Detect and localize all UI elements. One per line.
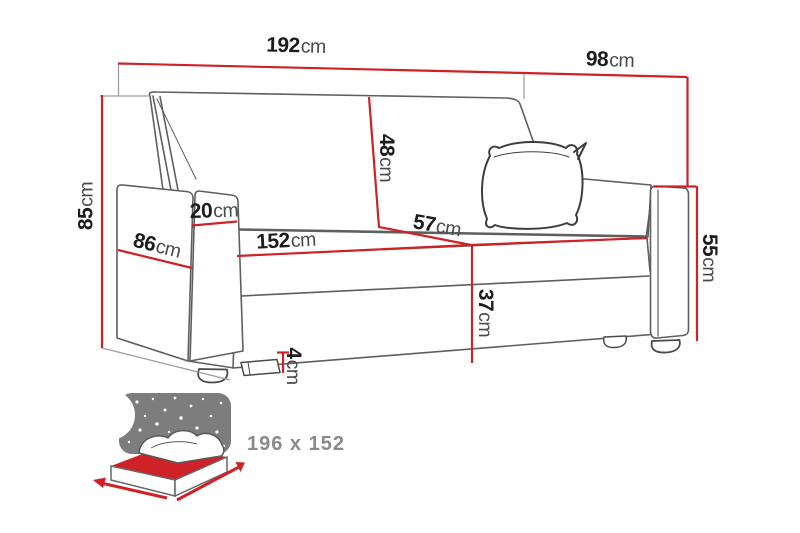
dim-unit: cm (434, 215, 462, 241)
dim-unit: cm (75, 182, 97, 207)
front-right-foot (652, 340, 680, 353)
arrow-head-left (93, 478, 106, 489)
dim-unit: cm (290, 229, 316, 252)
dim-value: 55 (698, 234, 721, 256)
mid-leg (241, 360, 280, 376)
dim-label-seat-height: 37cm (474, 289, 496, 337)
dim-value: 85 (74, 208, 97, 230)
dim-value: 192 (266, 33, 300, 57)
dim-label-overall-depth: 98cm (585, 48, 634, 71)
dim-value: 37 (474, 289, 497, 311)
dim-value: 57 (411, 210, 437, 237)
dim-label-overall-height: 85cm (75, 182, 97, 230)
dim-value: 98 (585, 47, 608, 71)
dim-value: 4 (282, 347, 305, 358)
dim-unit: cm (300, 35, 326, 58)
dim-unit: cm (609, 49, 635, 72)
dim-unit: cm (375, 157, 397, 182)
dim-label-overall-width: 192cm (266, 34, 326, 57)
dim-label-leg-height: 4cm (282, 347, 304, 384)
dim-label-armrest-height: 55cm (698, 234, 720, 282)
sofa-dimensions-diagram: 192cm 98cm 85cm 20cm 86cm 152cm 48cm 57c… (0, 0, 800, 533)
sleeping-area-size-label: 196 x 152 (247, 434, 345, 454)
dim-value: 48 (375, 134, 398, 156)
dim-unit: cm (698, 257, 720, 282)
right-armrest (651, 186, 689, 338)
mid-right-leg (604, 336, 627, 348)
pillow (482, 142, 586, 229)
dim-label-backrest-height: 48cm (375, 134, 397, 182)
dim-unit: cm (282, 360, 304, 385)
dim-label-armrest-top-width: 20cm (189, 199, 238, 222)
dim-unit: cm (213, 199, 239, 222)
dim-unit: cm (474, 312, 496, 337)
sofa-outline (117, 92, 689, 383)
dim-value: 20 (189, 199, 212, 223)
dim-value: 152 (256, 229, 291, 254)
bed-icon (85, 390, 245, 500)
left-armrest-outer-face (117, 185, 193, 361)
dim-label-seat-width: 152cm (256, 229, 317, 254)
sofa-sketch (0, 0, 800, 533)
left-armrest-bottom (188, 361, 234, 368)
moon-crescent (85, 390, 135, 440)
